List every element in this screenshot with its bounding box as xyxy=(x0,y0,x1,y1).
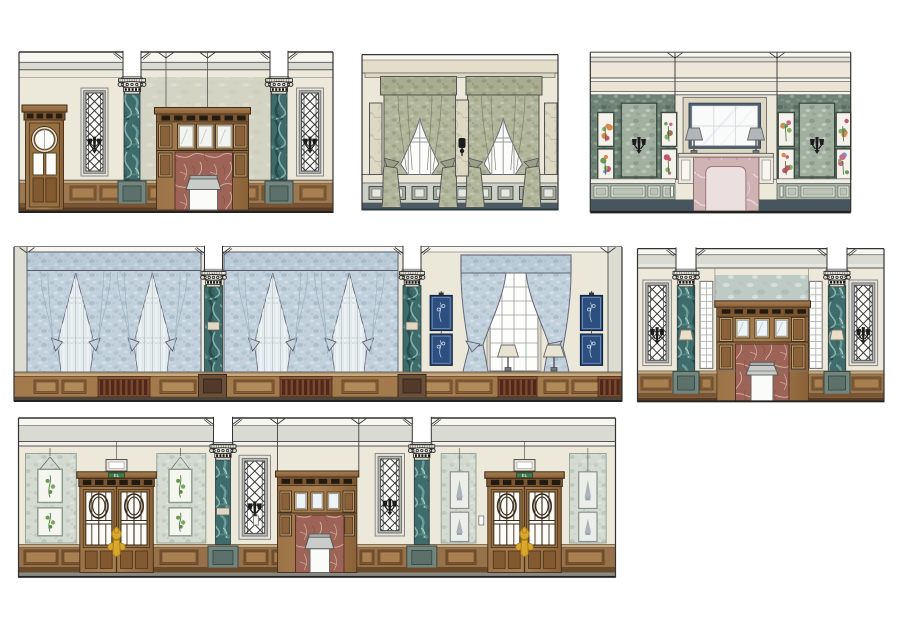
svg-text:EL: EL xyxy=(114,473,120,478)
svg-text:EL: EL xyxy=(522,473,528,478)
